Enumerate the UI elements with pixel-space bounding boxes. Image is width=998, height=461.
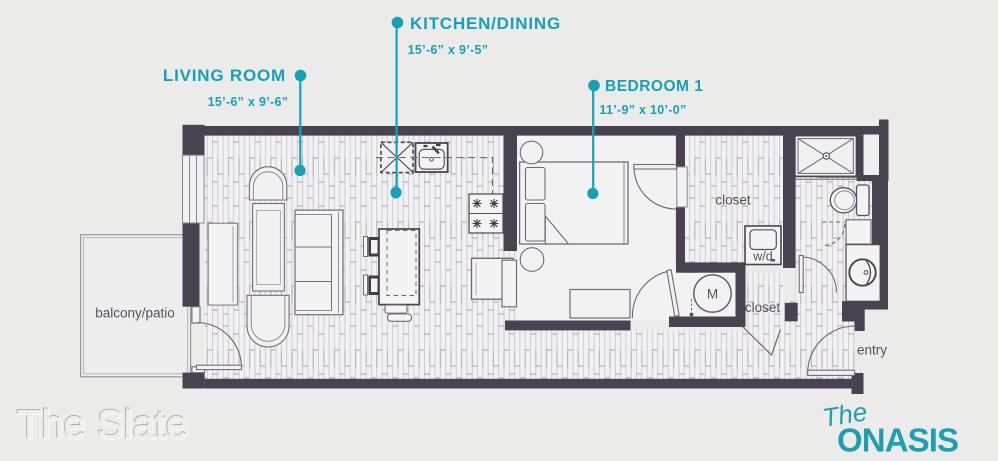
svg-text:balcony/patio: balcony/patio xyxy=(95,306,175,321)
svg-text:w/d: w/d xyxy=(752,250,773,264)
svg-text:closet: closet xyxy=(715,193,751,208)
svg-text:ONASIS: ONASIS xyxy=(837,422,958,459)
svg-text:LIVING ROOM: LIVING ROOM xyxy=(163,66,286,85)
svg-text:KITCHEN/DINING: KITCHEN/DINING xyxy=(410,14,561,33)
svg-text:M: M xyxy=(707,287,718,302)
svg-text:11’-9” x 10’-0”: 11’-9” x 10’-0” xyxy=(599,103,686,117)
svg-text:entry: entry xyxy=(857,343,887,358)
svg-text:closet: closet xyxy=(745,300,781,315)
svg-text:15’-6” x 9’-5”: 15’-6” x 9’-5” xyxy=(408,43,489,57)
svg-text:BEDROOM 1: BEDROOM 1 xyxy=(605,78,703,95)
svg-text:15’-6” x 9’-6”: 15’-6” x 9’-6” xyxy=(208,95,289,109)
svg-text:The Slate: The Slate xyxy=(17,403,188,447)
